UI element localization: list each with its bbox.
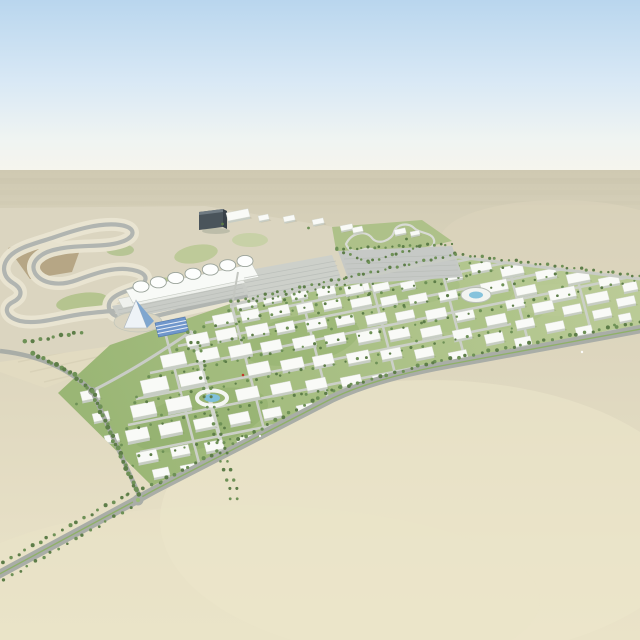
- tree: [568, 293, 570, 295]
- tree: [202, 456, 206, 460]
- tree: [244, 297, 247, 300]
- tree: [369, 331, 372, 334]
- grandstand-arch: [150, 277, 166, 288]
- tree: [481, 351, 484, 354]
- tree: [409, 346, 412, 349]
- tree: [328, 291, 330, 293]
- tree: [338, 316, 341, 319]
- tree: [446, 294, 449, 297]
- tree: [426, 243, 429, 246]
- tree: [286, 327, 289, 330]
- tree: [247, 318, 249, 320]
- tree: [415, 340, 418, 343]
- tree: [356, 381, 359, 384]
- tree: [457, 356, 461, 360]
- tree: [72, 331, 76, 335]
- tree: [171, 419, 173, 421]
- tree: [401, 287, 403, 289]
- tree: [371, 311, 373, 313]
- tree: [182, 416, 185, 419]
- tree: [295, 326, 298, 329]
- tree: [257, 295, 259, 297]
- tree: [36, 354, 41, 359]
- tree: [145, 400, 148, 403]
- tree: [474, 255, 476, 257]
- tree: [430, 258, 433, 261]
- tree: [402, 245, 405, 248]
- tree: [577, 291, 579, 293]
- tree: [360, 247, 362, 249]
- tree: [554, 272, 557, 275]
- tree: [222, 441, 225, 444]
- tree: [120, 444, 123, 447]
- tree: [391, 253, 394, 256]
- tree: [310, 283, 313, 286]
- tree: [279, 310, 282, 313]
- tree: [159, 374, 162, 377]
- tree: [252, 297, 255, 300]
- tree: [315, 303, 318, 306]
- tree: [161, 422, 163, 424]
- tree: [356, 257, 359, 260]
- tree: [371, 258, 374, 261]
- tree: [281, 397, 283, 399]
- tree: [251, 334, 254, 337]
- tree: [232, 478, 235, 481]
- tree: [203, 360, 206, 363]
- tree: [41, 356, 45, 360]
- tree: [219, 433, 222, 436]
- tree: [420, 322, 423, 325]
- tree: [302, 346, 304, 348]
- tree: [606, 325, 610, 329]
- tree: [238, 320, 240, 322]
- tree: [42, 556, 45, 559]
- tree: [30, 351, 35, 356]
- tree: [101, 413, 105, 417]
- tree: [276, 290, 279, 293]
- tree: [325, 341, 328, 344]
- tree: [499, 330, 501, 332]
- tree: [127, 493, 130, 496]
- tree: [202, 325, 205, 328]
- tree: [442, 341, 444, 343]
- tree: [358, 335, 360, 337]
- tree: [242, 336, 245, 339]
- tree: [225, 478, 228, 481]
- tree: [49, 361, 53, 365]
- tree: [237, 299, 240, 302]
- tree: [31, 543, 35, 547]
- tree: [454, 338, 456, 340]
- tree: [534, 263, 537, 266]
- tree: [137, 426, 140, 429]
- tree: [409, 244, 412, 247]
- tree: [513, 346, 516, 349]
- tree: [244, 435, 248, 439]
- tree: [229, 497, 232, 500]
- tree: [125, 427, 128, 430]
- tree: [366, 245, 369, 248]
- tree: [52, 335, 55, 338]
- tree: [239, 405, 242, 408]
- tree: [434, 256, 437, 259]
- tree: [196, 360, 199, 363]
- tree: [339, 287, 342, 290]
- tree: [433, 244, 436, 247]
- tree: [114, 443, 118, 447]
- tree: [137, 454, 140, 457]
- tree: [23, 339, 27, 343]
- tree: [448, 356, 452, 360]
- tree: [551, 338, 554, 341]
- tree: [2, 578, 5, 581]
- tree: [236, 359, 238, 361]
- tree: [493, 257, 496, 260]
- tree: [9, 556, 12, 559]
- tree: [231, 337, 234, 340]
- tree: [323, 281, 325, 283]
- tree: [408, 250, 411, 253]
- tree: [132, 484, 136, 488]
- tree: [255, 378, 258, 381]
- tree: [91, 513, 94, 516]
- tree: [46, 337, 50, 341]
- tree: [367, 261, 370, 264]
- tree: [330, 389, 333, 392]
- tree: [630, 323, 633, 326]
- tree: [303, 285, 306, 288]
- tree: [491, 308, 494, 311]
- tree: [360, 284, 363, 287]
- tree: [239, 308, 242, 311]
- tree: [223, 385, 225, 387]
- tree: [247, 300, 250, 303]
- tree: [293, 293, 296, 296]
- tree: [513, 282, 516, 285]
- tree: [209, 387, 212, 390]
- tree: [342, 248, 345, 251]
- tree: [75, 403, 78, 406]
- tree: [318, 283, 321, 286]
- tree: [556, 294, 559, 297]
- tree: [615, 325, 619, 329]
- tree: [378, 330, 381, 333]
- tree: [263, 333, 265, 335]
- tree: [23, 549, 26, 552]
- tree: [104, 503, 108, 507]
- tree: [206, 406, 209, 409]
- tree: [370, 378, 373, 381]
- tree: [348, 298, 350, 300]
- tree: [421, 345, 424, 348]
- tree: [392, 288, 395, 291]
- tree: [501, 283, 504, 286]
- tree: [57, 548, 60, 551]
- tree: [306, 323, 309, 326]
- tree: [592, 269, 595, 272]
- tree: [291, 288, 293, 290]
- tree: [316, 294, 318, 296]
- tree: [120, 496, 123, 499]
- tree: [565, 272, 568, 275]
- tree: [229, 468, 233, 472]
- tree: [396, 266, 399, 269]
- tree: [223, 447, 226, 450]
- tree: [19, 570, 22, 573]
- tree: [326, 389, 328, 391]
- tree: [69, 523, 73, 527]
- tree: [212, 433, 215, 436]
- tree: [181, 468, 184, 471]
- tree: [378, 258, 381, 261]
- tree: [283, 298, 286, 301]
- tree: [305, 393, 308, 396]
- tree: [200, 349, 203, 352]
- tree: [348, 286, 351, 289]
- tree: [281, 415, 285, 419]
- tree: [203, 412, 206, 415]
- tree: [382, 308, 384, 310]
- tree: [378, 374, 382, 378]
- red-accent-dot: [242, 374, 245, 377]
- tree: [111, 439, 115, 443]
- tree: [183, 446, 185, 448]
- tree: [545, 276, 547, 278]
- tree: [313, 342, 316, 345]
- tree: [402, 326, 404, 328]
- tree: [299, 368, 302, 371]
- tree: [1, 561, 5, 565]
- tree: [98, 525, 101, 528]
- tree: [585, 269, 588, 272]
- tree: [103, 419, 107, 423]
- tree: [318, 322, 320, 324]
- tree: [160, 414, 163, 417]
- tree: [190, 390, 193, 393]
- tree: [98, 404, 103, 409]
- tree: [384, 246, 386, 248]
- tree: [229, 300, 232, 303]
- tree: [424, 281, 427, 284]
- tree: [183, 370, 185, 372]
- tree: [193, 330, 197, 334]
- tree: [511, 327, 513, 329]
- tree: [414, 324, 416, 326]
- tree: [508, 259, 510, 261]
- tree: [104, 520, 107, 523]
- tree: [105, 425, 110, 430]
- tree: [300, 393, 303, 396]
- tree: [435, 319, 438, 322]
- tree: [619, 272, 622, 275]
- tree: [519, 261, 522, 264]
- tree: [132, 481, 136, 485]
- tree: [440, 359, 443, 362]
- tree: [164, 475, 168, 479]
- tree: [384, 268, 386, 270]
- tree: [226, 460, 229, 463]
- tree: [219, 422, 223, 426]
- tree: [112, 501, 116, 505]
- tree: [511, 265, 513, 267]
- tree: [137, 492, 142, 497]
- tree: [74, 537, 78, 541]
- tree: [251, 305, 254, 308]
- tree: [449, 254, 451, 256]
- tree: [338, 385, 342, 389]
- tree: [519, 344, 522, 347]
- tree: [150, 483, 153, 486]
- tree: [241, 435, 243, 437]
- tree: [330, 328, 333, 331]
- tree: [160, 481, 163, 484]
- tree: [327, 286, 330, 289]
- tree: [314, 288, 316, 290]
- tree: [248, 357, 250, 359]
- tree: [263, 305, 265, 307]
- tree: [214, 324, 217, 327]
- tree: [210, 454, 214, 458]
- tree: [235, 487, 238, 490]
- tree: [272, 302, 274, 304]
- tree: [592, 330, 595, 333]
- tree: [67, 333, 71, 337]
- tree: [270, 313, 273, 316]
- scene-svg: [0, 0, 640, 640]
- tree: [478, 334, 481, 337]
- tree: [272, 297, 274, 299]
- tree: [228, 487, 231, 490]
- tree: [486, 348, 490, 352]
- tree: [568, 333, 572, 337]
- tree: [433, 342, 436, 345]
- tree: [273, 418, 277, 422]
- tree: [346, 337, 348, 339]
- tree: [72, 372, 77, 377]
- tree: [293, 394, 296, 397]
- tree: [402, 304, 405, 307]
- tree: [344, 360, 346, 362]
- tree: [135, 396, 138, 399]
- tree: [311, 399, 315, 403]
- tree: [116, 445, 121, 450]
- tree: [463, 354, 466, 357]
- tree: [317, 390, 320, 393]
- tree: [271, 292, 274, 295]
- grandstand-arch: [168, 272, 184, 283]
- tree: [275, 373, 278, 376]
- tree: [34, 559, 38, 563]
- tree: [515, 259, 518, 262]
- tree: [512, 304, 514, 306]
- tree: [157, 397, 160, 400]
- tree: [561, 265, 564, 268]
- tree: [504, 346, 507, 349]
- tree: [362, 381, 365, 384]
- tree: [133, 401, 136, 404]
- tree: [424, 363, 428, 367]
- tree: [219, 341, 221, 343]
- tree: [462, 253, 465, 256]
- sand-streak: [0, 178, 640, 184]
- tree: [173, 473, 177, 477]
- tree: [501, 266, 504, 269]
- tree: [112, 514, 116, 518]
- grandstand-arch: [185, 268, 201, 279]
- tree: [357, 273, 360, 276]
- tree: [388, 266, 391, 269]
- tree: [438, 297, 440, 299]
- tree: [298, 285, 301, 288]
- tree: [467, 313, 469, 315]
- tree: [356, 357, 359, 360]
- tree: [194, 461, 197, 464]
- tree: [626, 273, 629, 276]
- tree: [203, 368, 206, 371]
- tree: [469, 274, 471, 276]
- tree: [395, 253, 398, 256]
- tree: [335, 284, 338, 287]
- tree: [303, 307, 305, 309]
- tree: [196, 368, 199, 371]
- tree: [226, 321, 229, 324]
- infield-green: [232, 233, 268, 247]
- tree: [423, 320, 426, 323]
- tree: [487, 331, 490, 334]
- tree: [446, 316, 449, 319]
- tree: [288, 371, 290, 373]
- tree: [330, 278, 333, 281]
- tree: [186, 466, 189, 469]
- tree: [317, 312, 320, 315]
- tree: [235, 383, 237, 385]
- tree: [169, 396, 171, 398]
- tree: [212, 422, 216, 426]
- tree: [96, 509, 99, 512]
- tree: [465, 275, 468, 278]
- tree: [327, 319, 329, 321]
- tree: [80, 331, 84, 335]
- tree: [478, 270, 481, 273]
- tree: [398, 244, 401, 247]
- tree: [96, 402, 100, 406]
- tree: [336, 299, 339, 302]
- tree: [11, 573, 14, 576]
- tree: [287, 411, 290, 414]
- tree: [401, 250, 404, 253]
- tree: [401, 349, 403, 351]
- tree: [203, 364, 206, 367]
- tree: [141, 487, 145, 491]
- tree: [264, 292, 267, 295]
- tree: [213, 406, 216, 409]
- tree: [266, 423, 269, 426]
- tree: [394, 305, 397, 308]
- tree: [490, 287, 492, 289]
- tree: [422, 259, 425, 262]
- tree: [80, 534, 83, 537]
- tree: [252, 430, 255, 433]
- tree: [583, 331, 586, 334]
- tree: [413, 285, 415, 287]
- tree: [573, 267, 575, 269]
- tree: [546, 263, 549, 266]
- tree: [539, 263, 541, 265]
- hotel-tower-side: [223, 209, 227, 229]
- tree: [74, 376, 79, 381]
- tree: [246, 379, 249, 382]
